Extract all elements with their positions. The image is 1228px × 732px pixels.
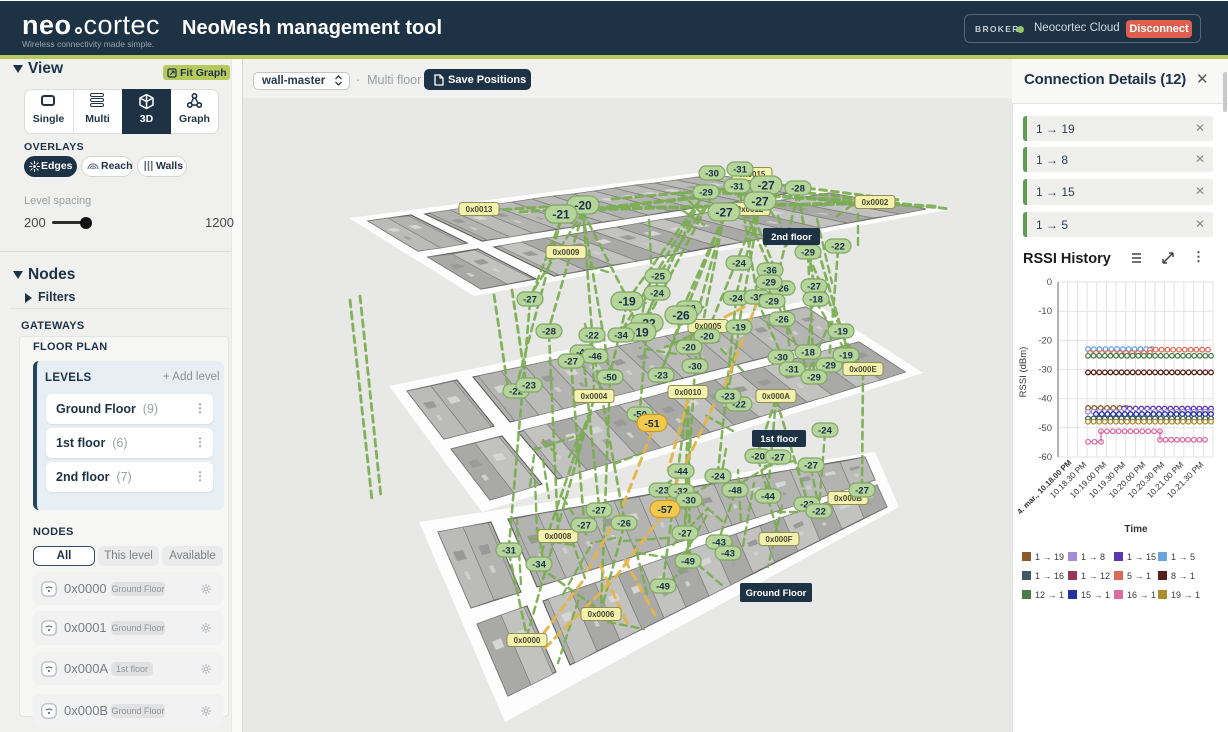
svg-text:-44: -44: [674, 467, 688, 478]
svg-text:-34: -34: [532, 560, 546, 571]
svg-text:-46: -46: [588, 352, 602, 363]
svg-text:19 → 1: 19 → 1: [1171, 590, 1200, 600]
svg-text:0x0009: 0x0009: [553, 248, 580, 257]
svg-text:-60: -60: [1038, 452, 1052, 463]
svg-text:-27: -27: [715, 206, 733, 220]
svg-text:-57: -57: [657, 504, 672, 516]
svg-text:-20: -20: [1038, 335, 1052, 346]
svg-text:-29: -29: [762, 278, 776, 289]
svg-text:-30: -30: [1038, 365, 1052, 376]
svg-text:-18: -18: [809, 295, 823, 306]
svg-text:-22: -22: [812, 507, 826, 518]
svg-text:-23: -23: [522, 381, 536, 392]
svg-text:0x0010: 0x0010: [675, 388, 702, 397]
svg-text:-27: -27: [855, 486, 869, 497]
svg-text:0x000E: 0x000E: [849, 365, 877, 374]
svg-text:-27: -27: [523, 295, 537, 306]
svg-text:-49: -49: [681, 557, 695, 568]
svg-text:-27: -27: [577, 521, 591, 532]
svg-text:1 → 16: 1 → 16: [1035, 571, 1064, 581]
svg-text:-28: -28: [542, 327, 556, 338]
svg-text:1st floor: 1st floor: [760, 434, 798, 445]
svg-text:-27: -27: [678, 529, 692, 540]
svg-text:-26: -26: [672, 309, 690, 323]
svg-text:12 → 1: 12 → 1: [1035, 590, 1064, 600]
svg-text:-50: -50: [1038, 423, 1052, 434]
svg-text:-29: -29: [822, 361, 836, 372]
svg-text:-21: -21: [552, 208, 570, 222]
svg-text:-29: -29: [807, 373, 821, 384]
svg-text:-22: -22: [585, 331, 599, 342]
svg-text:-27: -27: [751, 195, 769, 209]
svg-text:-29: -29: [765, 297, 779, 308]
svg-text:1 → 19: 1 → 19: [1035, 552, 1064, 562]
svg-text:-30: -30: [705, 169, 719, 180]
svg-text:-19: -19: [618, 295, 636, 309]
svg-text:-27: -27: [807, 282, 821, 293]
svg-text:-26: -26: [617, 519, 631, 530]
svg-text:Time: Time: [1124, 524, 1148, 535]
svg-text:0x000A: 0x000A: [762, 392, 790, 401]
svg-text:-19: -19: [834, 327, 848, 338]
svg-text:-28: -28: [791, 184, 805, 195]
svg-text:-22: -22: [831, 242, 845, 253]
svg-text:-27: -27: [804, 461, 818, 472]
svg-text:0x0000: 0x0000: [514, 636, 541, 645]
svg-text:16 → 1: 16 → 1: [1127, 590, 1156, 600]
svg-text:-26: -26: [775, 315, 789, 326]
svg-text:0x000F: 0x000F: [765, 535, 792, 544]
svg-text:-24: -24: [818, 426, 832, 437]
svg-text:-23: -23: [655, 486, 669, 497]
svg-text:-20: -20: [682, 343, 696, 354]
svg-text:-27: -27: [757, 179, 775, 193]
svg-text:-24: -24: [711, 472, 725, 483]
svg-text:-20: -20: [700, 332, 714, 343]
svg-text:-18: -18: [801, 348, 815, 359]
svg-text:-29: -29: [801, 248, 815, 259]
svg-text:-25: -25: [651, 272, 665, 283]
svg-text:-27: -27: [771, 453, 785, 464]
svg-text:0x0004: 0x0004: [581, 392, 608, 401]
svg-text:-51: -51: [644, 418, 659, 430]
svg-text:-19: -19: [839, 351, 853, 362]
svg-text:0x0002: 0x0002: [862, 198, 889, 207]
svg-text:-29: -29: [699, 188, 713, 199]
svg-text:0: 0: [1047, 277, 1052, 288]
svg-text:-23: -23: [721, 392, 735, 403]
svg-text:-48: -48: [728, 486, 742, 497]
svg-text:-30: -30: [688, 362, 702, 373]
svg-text:-23: -23: [654, 371, 668, 382]
svg-text:0x0006: 0x0006: [588, 610, 615, 619]
svg-text:-31: -31: [785, 365, 799, 376]
svg-text:-24: -24: [729, 294, 743, 305]
svg-text:-10: -10: [1038, 306, 1052, 317]
svg-text:5 → 1: 5 → 1: [1127, 571, 1151, 581]
svg-text:-43: -43: [721, 549, 735, 560]
svg-text:-31: -31: [730, 182, 744, 193]
svg-text:0x0013: 0x0013: [466, 205, 493, 214]
svg-text:-40: -40: [1038, 394, 1052, 405]
svg-text:-44: -44: [761, 492, 775, 503]
svg-text:-49: -49: [656, 582, 670, 593]
svg-text:RSSI (dBm): RSSI (dBm): [1018, 347, 1029, 398]
svg-text:0x0008: 0x0008: [545, 532, 572, 541]
svg-text:15 → 1: 15 → 1: [1081, 590, 1110, 600]
svg-text:-31: -31: [733, 165, 747, 176]
svg-text:Ground Floor: Ground Floor: [746, 588, 807, 599]
svg-text:-34: -34: [614, 331, 628, 342]
svg-text:1 → 5: 1 → 5: [1171, 552, 1195, 562]
svg-text:8 → 1: 8 → 1: [1171, 571, 1195, 581]
svg-text:-19: -19: [732, 323, 746, 334]
svg-text:-30: -30: [682, 496, 696, 507]
svg-text:1 → 15: 1 → 15: [1127, 552, 1156, 562]
svg-text:-27: -27: [564, 357, 578, 368]
svg-text:-20: -20: [751, 452, 765, 463]
svg-text:-24: -24: [732, 259, 746, 270]
svg-text:-24: -24: [650, 289, 664, 300]
svg-text:-27: -27: [592, 506, 606, 517]
svg-text:2nd floor: 2nd floor: [771, 232, 812, 243]
svg-text:-31: -31: [502, 546, 516, 557]
svg-text:-50: -50: [603, 373, 617, 384]
svg-text:1 → 8: 1 → 8: [1081, 552, 1105, 562]
svg-text:1 → 12: 1 → 12: [1081, 571, 1110, 581]
